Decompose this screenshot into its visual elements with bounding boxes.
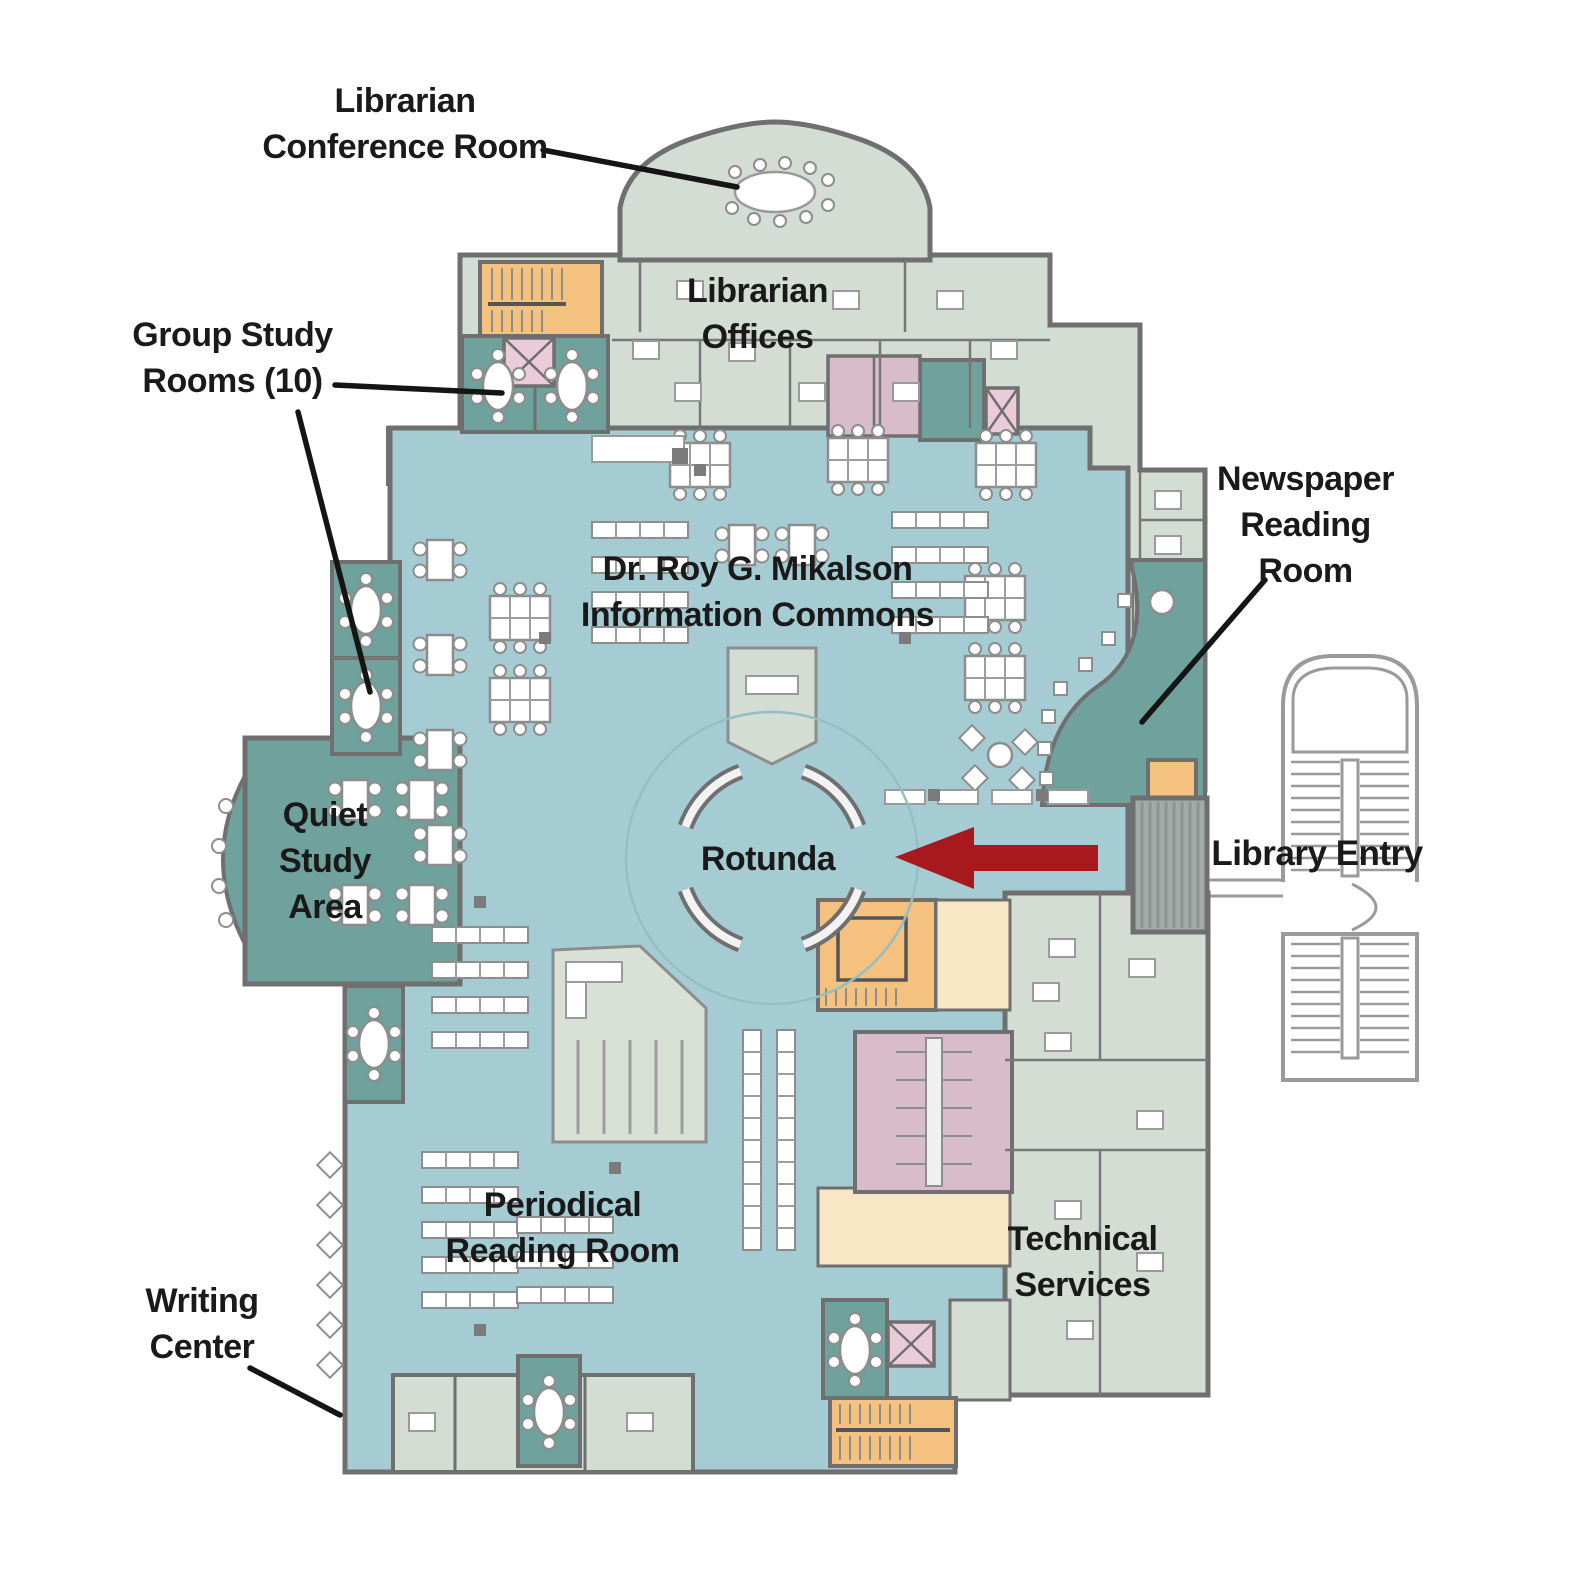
exterior-stairs (1207, 656, 1417, 1080)
entry-vestibule (1133, 798, 1207, 932)
room-technical-services (1005, 893, 1208, 1395)
floor-plan-map: Librarian Conference Room Group Study Ro… (0, 0, 1590, 1590)
floor-plan-drawing (0, 0, 1590, 1590)
center-info-island (728, 648, 816, 764)
